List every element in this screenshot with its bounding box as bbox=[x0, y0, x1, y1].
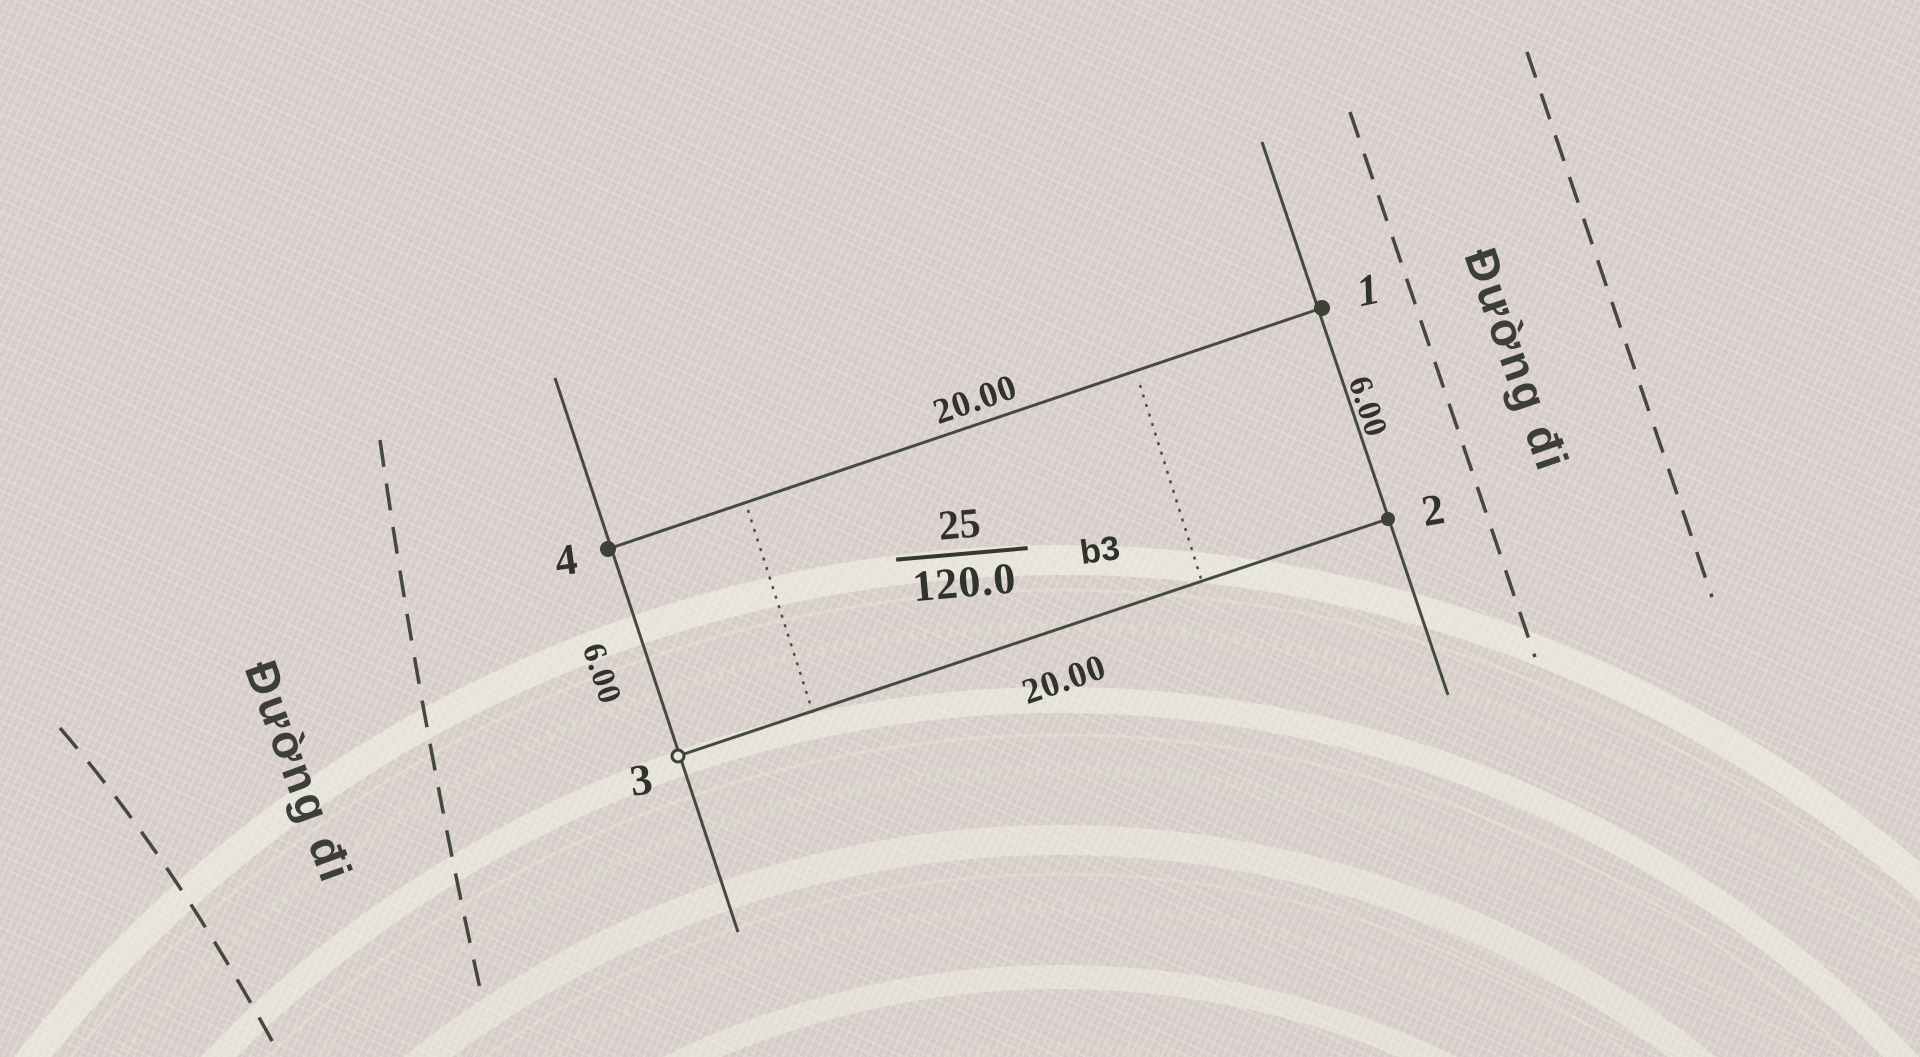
corner-point-1 bbox=[1314, 300, 1330, 316]
corner-point-4 bbox=[600, 541, 616, 557]
corner-point-2 bbox=[1381, 512, 1395, 526]
right-road-dashed-outer bbox=[1527, 52, 1712, 597]
parcel-edge-bottom bbox=[678, 519, 1388, 756]
interior-dotted-line-left bbox=[748, 510, 813, 713]
plot-number-area-fraction: 25 120.0 bbox=[892, 498, 1032, 611]
left-road-dashed-line bbox=[380, 440, 483, 1002]
block-label: b3 bbox=[1078, 529, 1123, 573]
cadastral-sketch-page: 1 2 3 4 20.00 20.00 6.00 6.00 25 120.0 b… bbox=[0, 0, 1920, 1057]
corner-point-3 bbox=[672, 750, 684, 762]
interior-dotted-line-right bbox=[1140, 385, 1203, 585]
left-road-dashed-curve bbox=[60, 728, 277, 1050]
plot-area: 120.0 bbox=[896, 550, 1032, 612]
